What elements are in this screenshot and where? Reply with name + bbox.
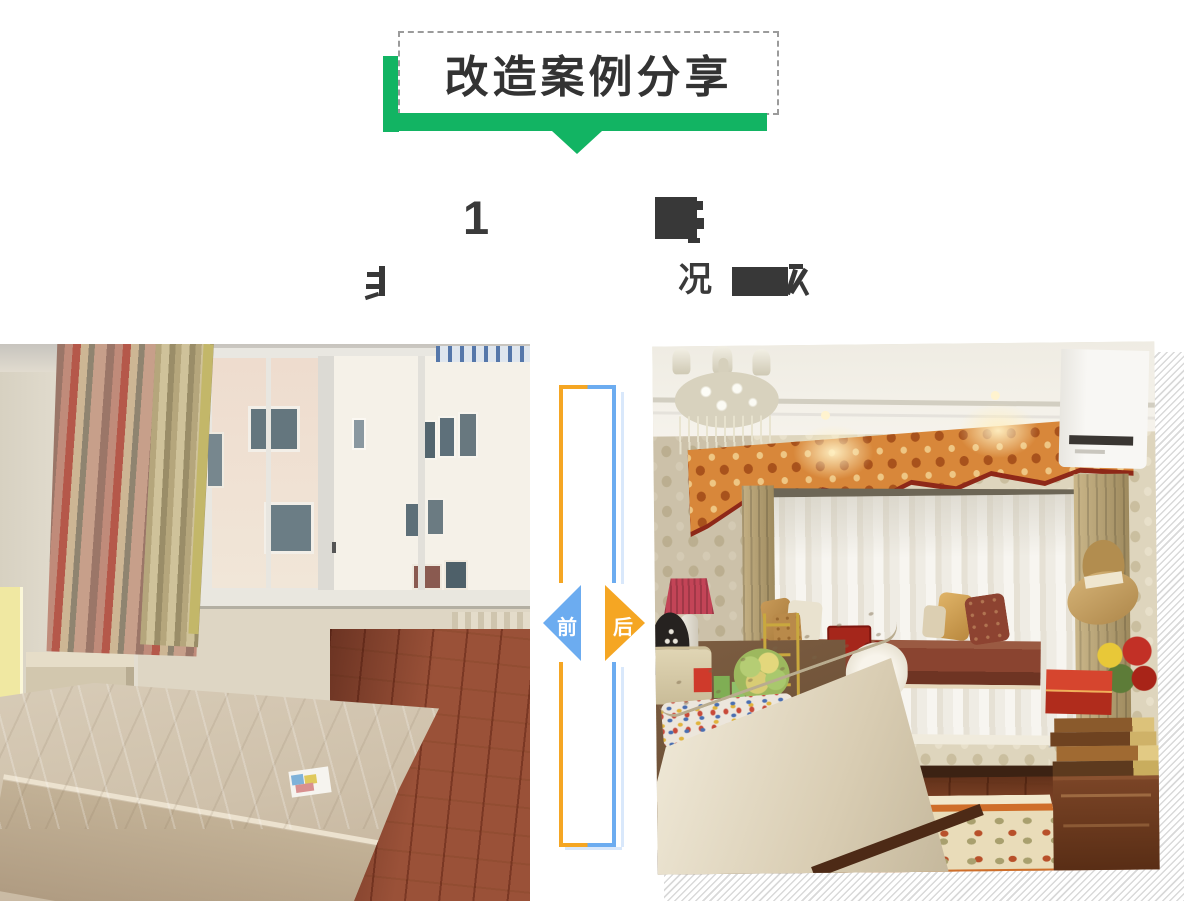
subtitle-visible-char: 况 — [678, 264, 712, 296]
banner-pointer — [552, 131, 602, 154]
page: 改造案例分享 1 况 — [0, 0, 1184, 901]
lamp-shade — [664, 578, 714, 615]
before-label: 前 — [554, 611, 580, 640]
frame-shadow — [621, 392, 624, 584]
banner-box: 改造案例分享 — [398, 31, 779, 115]
subtitle-redacted-block — [732, 267, 788, 296]
straw-hat — [1066, 540, 1139, 639]
pillow-rust — [964, 592, 1011, 645]
subtitle-fragment-left — [379, 266, 385, 296]
dresser — [1037, 631, 1159, 872]
photo-after — [652, 341, 1160, 874]
frame-top-edge — [559, 385, 616, 389]
ac-vent — [1069, 435, 1133, 446]
headline-redacted-block — [655, 197, 697, 239]
building-window — [426, 498, 445, 536]
building-window — [458, 412, 478, 458]
balcony-railing — [436, 346, 530, 362]
after-label: 后 — [610, 611, 636, 640]
banner-accent-bottom-bar — [383, 113, 767, 131]
case-headline: 1 — [0, 194, 1184, 242]
headline-visible-digit: 1 — [463, 196, 489, 240]
frame-bottom-edge — [559, 843, 616, 847]
frame-right-line — [612, 662, 616, 843]
banner-title: 改造案例分享 — [445, 41, 733, 105]
frame-right-line — [612, 385, 616, 583]
case-subtitle: 况 — [0, 261, 1184, 301]
ceiling-spot — [821, 411, 830, 420]
sleigh-bench — [655, 638, 967, 874]
red-gift-boxes — [1045, 669, 1112, 715]
spotlight-glow — [958, 403, 1039, 459]
air-conditioner — [1058, 349, 1149, 469]
dresser-body — [1053, 775, 1160, 874]
building-window — [248, 406, 300, 452]
comparison-frame: 前 后 — [543, 385, 653, 850]
building-window — [264, 502, 314, 554]
stacked-books — [1050, 717, 1159, 776]
crystal-chandelier — [652, 345, 803, 457]
spotlight-glow — [793, 424, 874, 480]
window-latch — [332, 542, 336, 553]
window-mullion — [318, 356, 334, 590]
pillow-cream-small — [922, 605, 946, 639]
building-window — [412, 564, 442, 590]
photo-before — [0, 344, 530, 901]
window-pane-right — [334, 356, 530, 590]
frame-left-line — [559, 662, 563, 843]
frame-shadow — [565, 847, 622, 850]
building-window — [438, 416, 456, 458]
building-window — [444, 560, 468, 590]
paper-tag — [288, 766, 331, 797]
frame-left-line — [559, 385, 563, 583]
building-window — [352, 418, 366, 450]
ceiling-spot — [991, 391, 1000, 400]
frame-shadow — [621, 667, 624, 847]
